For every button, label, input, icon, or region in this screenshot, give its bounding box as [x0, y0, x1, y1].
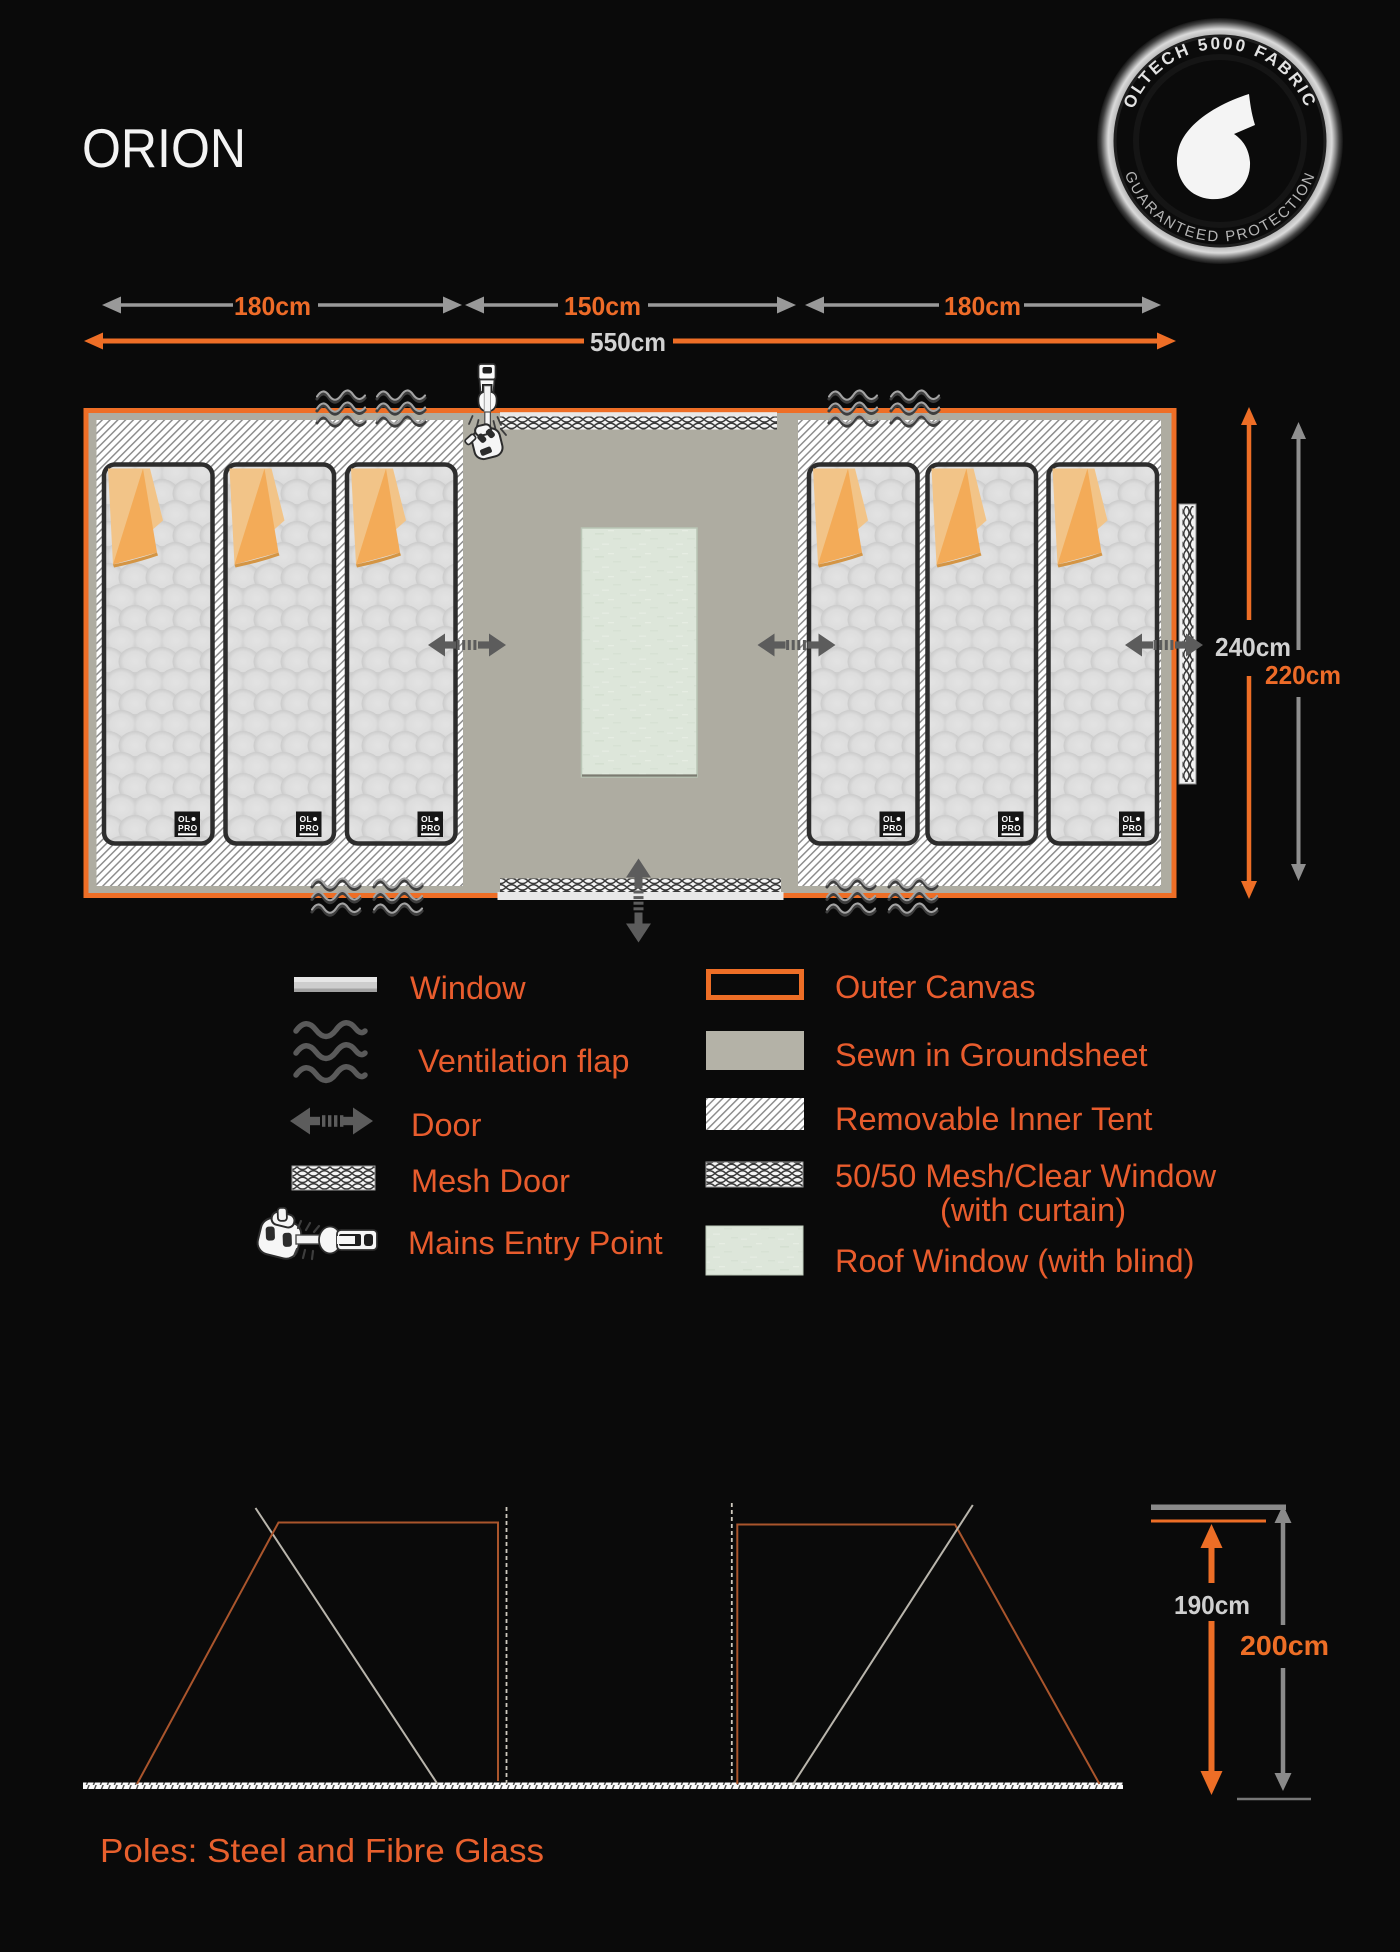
svg-text:Mains Entry Point: Mains Entry Point: [408, 1225, 663, 1261]
svg-text:PRO: PRO: [178, 823, 198, 833]
svg-text:150cm: 150cm: [564, 291, 641, 321]
svg-text:50/50 Mesh/Clear Window: 50/50 Mesh/Clear Window: [835, 1158, 1217, 1194]
svg-text:Ventilation flap: Ventilation flap: [418, 1043, 629, 1079]
svg-text:PRO: PRO: [883, 823, 903, 833]
svg-text:220cm: 220cm: [1265, 660, 1341, 690]
svg-text:ORION: ORION: [82, 117, 246, 179]
svg-text:200cm: 200cm: [1240, 1630, 1329, 1661]
svg-text:Mesh Door: Mesh Door: [411, 1163, 570, 1199]
svg-text:240cm: 240cm: [1215, 632, 1291, 662]
svg-text:Sewn in Groundsheet: Sewn in Groundsheet: [835, 1037, 1148, 1073]
svg-text:Roof Window (with blind): Roof Window (with blind): [835, 1243, 1194, 1279]
svg-text:Door: Door: [411, 1107, 482, 1143]
svg-text:550cm: 550cm: [590, 327, 666, 357]
svg-text:180cm: 180cm: [944, 291, 1021, 321]
svg-text:PRO: PRO: [421, 823, 441, 833]
svg-text:Window: Window: [410, 970, 526, 1006]
svg-text:PRO: PRO: [1123, 823, 1143, 833]
svg-text:(with curtain): (with curtain): [940, 1192, 1126, 1228]
svg-text:190cm: 190cm: [1174, 1590, 1250, 1620]
svg-text:PRO: PRO: [1002, 823, 1022, 833]
svg-text:180cm: 180cm: [234, 291, 311, 321]
svg-text:Poles: Steel and Fibre Glass: Poles: Steel and Fibre Glass: [100, 1832, 544, 1869]
svg-text:Outer Canvas: Outer Canvas: [835, 969, 1036, 1005]
svg-text:Removable Inner Tent: Removable Inner Tent: [835, 1101, 1152, 1137]
svg-text:PRO: PRO: [300, 823, 320, 833]
